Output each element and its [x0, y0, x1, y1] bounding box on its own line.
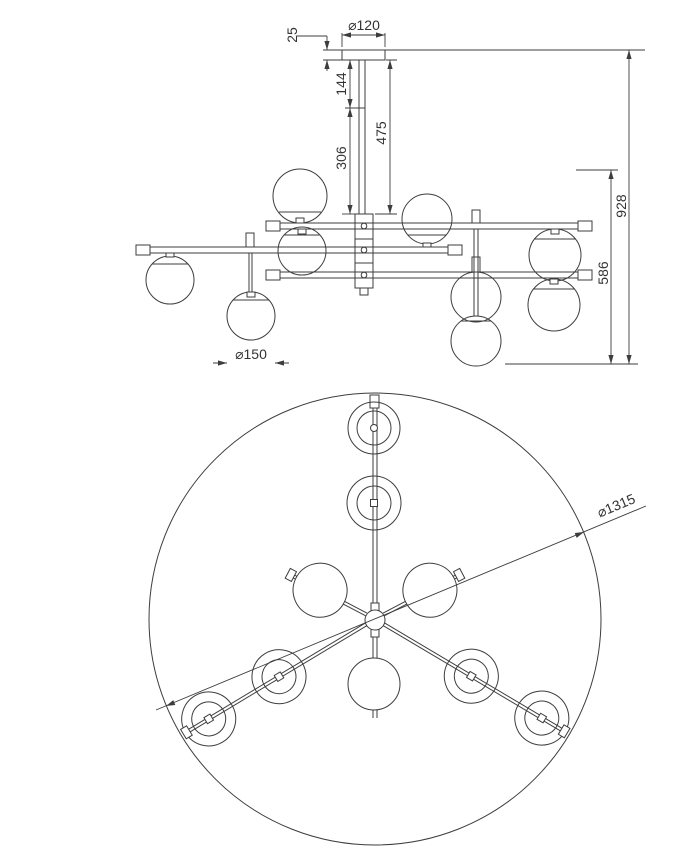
dim-globe-diameter: ⌀150 [213, 346, 289, 366]
arrowhead [608, 170, 613, 179]
hub-body [355, 214, 373, 288]
globe-sphere [146, 256, 194, 304]
ceiling-canopy [342, 50, 385, 60]
arrowhead [387, 205, 392, 214]
globe-sphere [273, 169, 327, 223]
dim-rod-total: 475 [373, 60, 397, 214]
globe-sphere [529, 229, 581, 281]
dimension-line [297, 36, 327, 71]
hub-bottom-nub [360, 288, 368, 295]
globe-upper-left-top [273, 169, 327, 223]
dim-label-rod-lower: 306 [333, 146, 349, 170]
globe-sphere [451, 316, 501, 366]
arm-middle [136, 245, 462, 255]
stem-block [472, 210, 480, 223]
globe-upper-right [402, 194, 452, 247]
hub-dividers [355, 239, 373, 263]
arrowhead [626, 50, 631, 59]
arrowhead [324, 41, 329, 50]
arm-end-cap [578, 221, 592, 231]
plain-globe [348, 658, 400, 710]
arm-end-cap [136, 245, 150, 255]
dim-label-overall-height: 928 [613, 194, 629, 218]
globe-sphere [451, 272, 501, 322]
globe-sphere [227, 292, 275, 340]
dim-rod-lower: 306 [333, 108, 356, 214]
technical-drawing-page: ⌀120 25 144 306 [0, 0, 698, 857]
arm-end-cap [448, 245, 462, 255]
plan-arm-lower-right [370, 601, 581, 756]
plan-arm-upper-right [371, 549, 474, 638]
globe-stem-right-upper [451, 272, 501, 322]
extension-lines [323, 50, 342, 60]
dim-label-overall-diameter: ⌀1315 [595, 490, 638, 520]
dim-label-canopy-height: 25 [284, 27, 300, 43]
dim-rod-upper: 144 [333, 60, 365, 108]
arrowhead [347, 108, 352, 117]
globe-cap [247, 292, 255, 297]
arm-end-cap [266, 221, 280, 231]
stem-block [246, 233, 254, 247]
ring-globe-center [371, 500, 378, 507]
central-hub [355, 214, 373, 295]
arrowhead [324, 60, 329, 69]
globe-cap [423, 243, 431, 247]
globe-sphere [402, 194, 452, 244]
drop-stem-right [472, 210, 480, 316]
arm-end-cap [578, 270, 592, 280]
plan-arm-up [347, 395, 401, 610]
hub-screw [361, 223, 367, 229]
plain-globe [393, 554, 466, 627]
arrowhead [376, 32, 385, 37]
plain-globe [284, 554, 357, 627]
arrowhead [387, 60, 392, 69]
arm-lines [373, 408, 377, 610]
arrowhead [347, 60, 352, 69]
globe-upper-left-bottom [278, 227, 326, 275]
globe-cap [166, 253, 174, 257]
dim-overall-diameter: ⌀1315 [156, 490, 646, 710]
dim-label-globe-diameter: ⌀150 [235, 346, 267, 362]
globe-far-left [146, 253, 194, 304]
rod-lines [359, 60, 365, 214]
arm-end-cap [266, 270, 280, 280]
stem-block [472, 257, 480, 272]
arm-bar [280, 223, 578, 229]
dim-overall-height: 928 [505, 50, 638, 364]
suspension-rod [359, 60, 365, 214]
hub-screw [361, 272, 367, 278]
arrowhead [218, 360, 227, 365]
plan-arm-down [348, 630, 400, 718]
dim-label-body-height: 586 [595, 261, 611, 285]
plan-view: ⌀1315 [149, 393, 646, 845]
globe-cap [296, 218, 304, 223]
drop-stem-left [246, 233, 254, 292]
dim-label-rod-upper: 144 [333, 72, 349, 96]
globe-stem-right-lower [451, 316, 501, 366]
dim-canopy-height: 25 [284, 27, 342, 71]
globe-cap [551, 229, 559, 234]
stem-lines [249, 253, 252, 292]
arm-bar [150, 247, 448, 253]
arrowhead [342, 32, 351, 37]
ring-globe-center [371, 425, 378, 432]
dimension-line [156, 506, 646, 710]
arrowhead [608, 355, 613, 364]
dim-label-rod-total: 475 [373, 121, 389, 145]
arm-top [266, 221, 592, 231]
arm-stub [373, 710, 377, 718]
arrowhead [347, 99, 352, 108]
arrowhead [347, 205, 352, 214]
globe-cap [550, 279, 558, 284]
dim-label-canopy-diameter: ⌀120 [348, 17, 380, 33]
globe-cap [298, 229, 306, 234]
globe-stem-left [227, 292, 275, 340]
arm-end-nub [370, 395, 379, 408]
globe-far-right-upper [529, 229, 581, 281]
hub-circle [365, 610, 385, 630]
globe-far-right-lower [528, 279, 580, 331]
globe-sphere [528, 279, 580, 331]
elevation-view: ⌀120 25 144 306 [136, 17, 645, 366]
arrowhead [275, 360, 284, 365]
drawing-svg: ⌀120 25 144 306 [0, 0, 698, 857]
plan-hub [365, 603, 385, 637]
arm-bar [280, 272, 578, 278]
arrowhead [626, 355, 631, 364]
hub-screw [361, 247, 367, 253]
dim-body-height: 586 [576, 170, 618, 364]
dim-canopy-diameter: ⌀120 [342, 17, 385, 47]
